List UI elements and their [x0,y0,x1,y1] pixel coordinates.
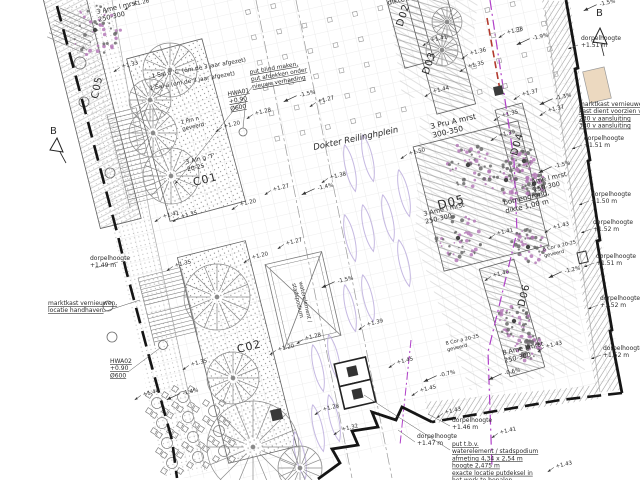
note: HWA02+0.90Ø600 [110,358,132,379]
tree-canopy [432,7,462,37]
note: marktkast vernieuwen,locatie handhaven [48,300,117,314]
site-plan-sheet: B B C05C01C02D02D03D04D05D06 3 Ame l mrs… [0,0,640,480]
section-letter: B [596,8,603,19]
note: dorpelhoogte+1.46 m [452,417,492,431]
site-plan-drawing: B B C05C01C02D02D03D04D05D06 3 Ame l mrs… [0,0,640,480]
spot-height: +1.41 [490,426,517,438]
section-marker-left: B [50,126,66,163]
note: dorpelhoogte+1.52 m [593,219,633,233]
svg-text:+1.41: +1.41 [499,426,517,436]
svg-text:-1.5%: -1.5% [599,0,616,8]
note: dorpelhoogte+1.52 m [603,345,640,359]
note: put t.b.v.waterelement / stadspodiumafme… [452,441,538,480]
note: dorpelhoogte+1.51 m [584,135,624,149]
tree-canopy [207,352,259,404]
svg-text:+1.43: +1.43 [555,460,573,470]
tree-canopy [129,109,177,157]
note: dorpelhoogte+1.50 m [591,191,631,205]
note: dorpelhoogte+1.51 m [581,35,621,49]
note: dorpelhoogte+1.52 m [600,295,640,309]
note: marktkast vernieuwen,kast dient voorzien… [579,101,640,130]
note: dorpelhoogte+1.51 m [596,253,636,267]
tree-canopy [184,264,250,330]
building-entry-patch [583,67,612,103]
section-letter: B [50,126,57,137]
spot-height: +1.43 [546,460,573,472]
